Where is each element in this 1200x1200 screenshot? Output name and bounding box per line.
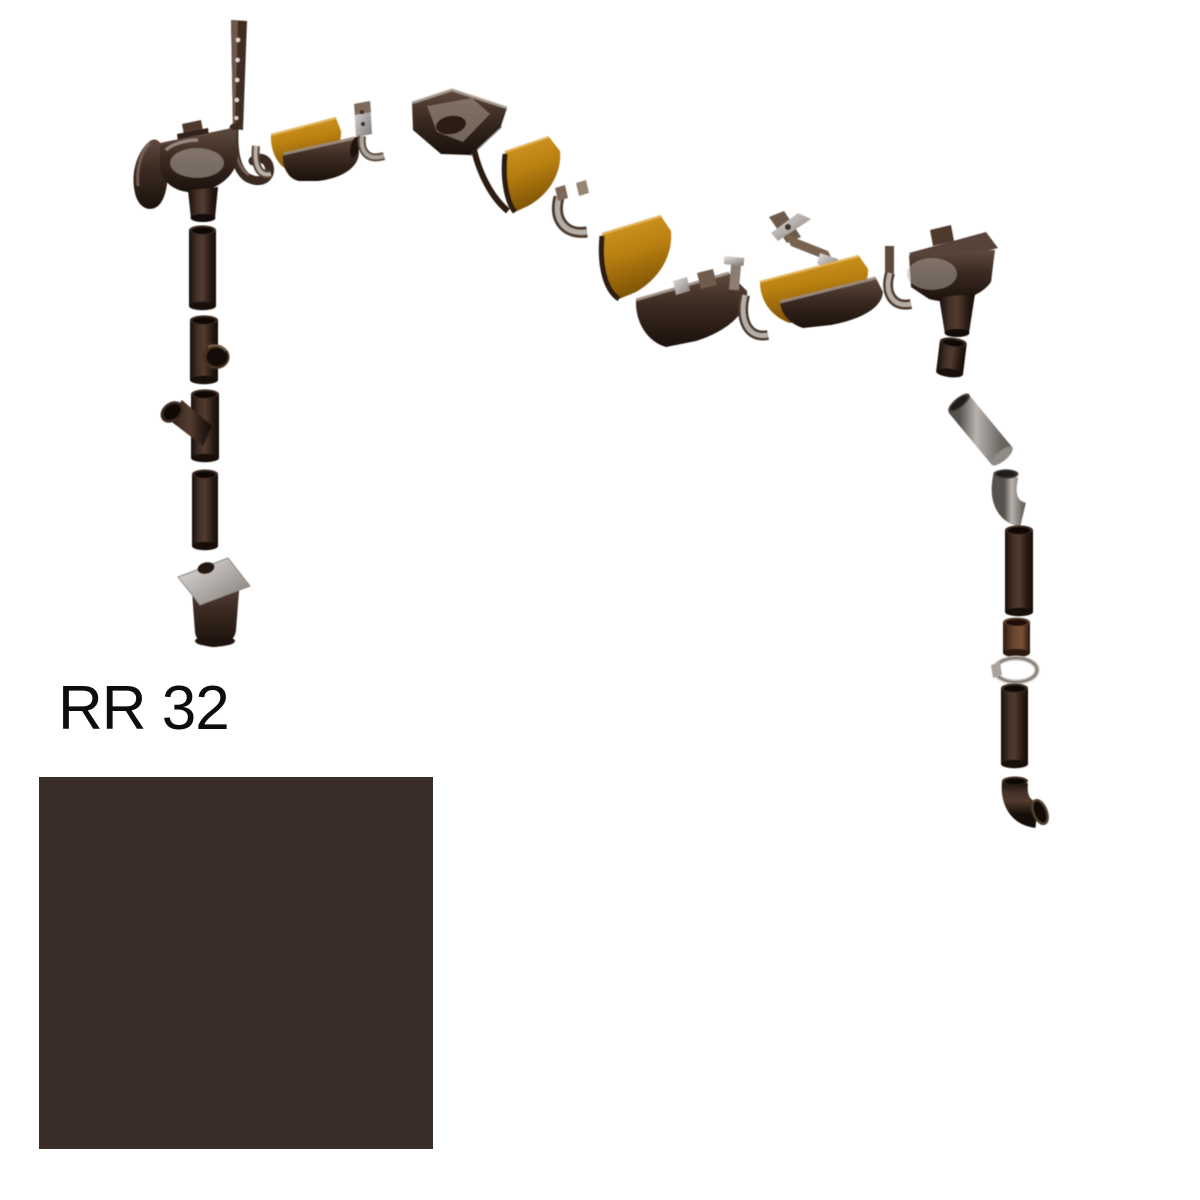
gutter-union [555, 180, 589, 232]
color-code-label: RR 32 [58, 678, 229, 740]
adjustable-bracket [769, 211, 838, 270]
downpipe-branch-45 [156, 389, 219, 462]
downpipe-angled [945, 390, 1015, 468]
downpipe-section-3 [936, 336, 968, 379]
downpipe-section-5 [1001, 684, 1028, 769]
gutter-bracket-2 [503, 137, 560, 212]
gutter-bracket-3 [601, 216, 671, 299]
downpipe-section-2 [192, 470, 218, 551]
downpipe-section-4 [1005, 525, 1033, 616]
gutter-outlet-funnel-left [160, 120, 238, 222]
pipe-clamp [991, 658, 1037, 682]
drain-trap [178, 558, 250, 647]
gutter-outlet-funnel-right [907, 225, 998, 337]
downpipe-shoe [1002, 777, 1051, 827]
downpipe-tee [190, 315, 230, 384]
gutter-corner [412, 90, 507, 155]
downpipe-section-1 [189, 225, 216, 310]
gutter-hook-2 [743, 295, 768, 336]
product-page: { "product": { "color_code": "RR 32", "s… [0, 0, 1200, 1200]
downpipe-elbow [994, 469, 1024, 515]
pipe-coupling [1003, 618, 1030, 657]
color-swatch [39, 777, 433, 1149]
